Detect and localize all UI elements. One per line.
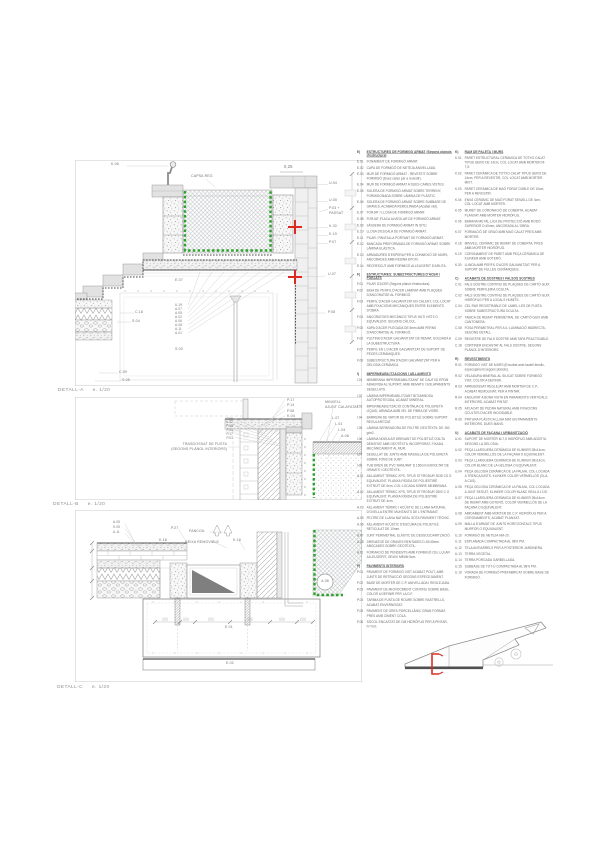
detail-b-caption: DETALL-Be. 1/20: [53, 502, 105, 507]
legend-item: R.06PINTURA PLÀSTICA LLISA MAT EN PARAME…: [455, 417, 550, 426]
planter-substrate-hatch: [183, 190, 272, 253]
legend-item: C.01FALS SOSTRE CONTINU DE PLAQUES DE CA…: [455, 282, 550, 291]
legend-item: I.06LÀMINA NODULAR DRENANT DE POLIETILÈ …: [357, 437, 452, 451]
legend-section: F)ESTRUCTURES: SUBESTRUCTURES D'ACER I F…: [357, 273, 452, 368]
legend-item: R.03ARREBOSSAT REGLEJAT AMB MORTER DE C.…: [455, 384, 550, 393]
legend-item: U.08AMIDAMENT AMB MORTER DE C.P. HIDRÒFU…: [455, 511, 550, 520]
detail-c-caption: DETALL-Ce. 1/20: [57, 685, 110, 690]
legend-item: F.04ANCORATGES MECÀNICS TIPUS HILTI HST3…: [357, 315, 452, 324]
legend-item: K.19CORONAMENT DE PARET AMB PEÇA CERÀMIC…: [455, 252, 550, 261]
key-section-sketch: [395, 617, 555, 679]
legend-item: K.18MINVELL CERÀMIC DE REMAT DE COBERTA,…: [455, 241, 550, 250]
legend-section: K)RAM DE PALETA I MURSK.01PARET ESTRUCTU…: [455, 150, 550, 272]
legend-item: K.30LLINDA AMB PERFIL D'ACER GALVANITZAT…: [455, 263, 550, 272]
detail-b-linework: [75, 397, 362, 500]
facade-wall-section: [295, 188, 317, 383]
legend-item: F.01PILAR D'ACER (Segons plànol d'estruc…: [357, 282, 452, 287]
detail-a-drawing: K.06CAPSA REG0,25U.04U.05P.03 +PASSATK.3…: [75, 160, 362, 386]
legend-section-header: U)ACABATS DE FAÇANA I URBANITZACIÓ: [455, 431, 550, 435]
legend-item: A.08DRENATGE DE GRAVES RENTADES D.20/40m…: [357, 539, 452, 548]
legend-item: E.07FORJAT / LLOSA DE FORMIGÓ ARMAT.: [357, 211, 452, 216]
key-section-linework: [395, 617, 555, 679]
legend-item: A.07JUNT PERIMETRAL ELÀSTIC DE DESSOLIDA…: [357, 533, 452, 538]
legend-item: U.05PEÇA GELOSIA CERÀMICA DE LA PALMA, C…: [455, 485, 550, 494]
legend-item: A.05FELTRE DE LLANA NATURAL SOTA PAVIMEN…: [357, 516, 452, 521]
legend-item: K.07FORMACIÓ DE GRAÓ AMB MAÓ CALAT PRES …: [455, 230, 550, 239]
legend-item: E.09JÀSSERA DE FORMIGÓ ARMAT IN SITU.: [357, 223, 452, 228]
legend-item: E.14RECRESCUT AMB FORMIGÓ ALLEUGERIT D'A…: [357, 263, 452, 268]
legend-section: R)REVESTIMENTSR.01FORMIGÓ VIST DE MURS (…: [455, 357, 550, 426]
detail-a-linework: [75, 160, 362, 386]
detail-b-drawing: P.17P.14P.08K.04P.06K.02P.05P.04P.17P.01…: [75, 397, 362, 500]
legend-item: R.05APLACAT DE PEDRA NATURAL AMB FIXACIO…: [455, 406, 550, 415]
legend-item: E.01FONAMENT DE FORMIGÓ ARMAT.: [357, 159, 452, 164]
legend-item: E.05SOLERA DE FORMIGÓ ARMAT SOBRE TERREN…: [357, 189, 452, 198]
legend-item: E.12BANCADA PREFORMADA DE FORMIGÓ ARMAT …: [357, 242, 452, 251]
legend-item: U.04PEÇA GELOSIA CERÀMICA DE LA PALMA, C…: [455, 469, 550, 483]
legend-item: E.08FORJAT-PLACA ALVEOLAR DE FORMIGÓ ARM…: [357, 217, 452, 222]
legend-section-header: R)REVESTIMENTS: [455, 357, 550, 361]
gravel-band: [97, 581, 160, 598]
legend-item: I.08TUB DREN DE PVC RANURAT D.150mm ENVO…: [357, 463, 452, 472]
legend-item: K.02PARET CERÀMICA DE TOTXO CALAT TIPUS …: [455, 171, 550, 185]
legend-item: F.05XAPA D'ACER PLEGADA DE 8mm AMB PERNS…: [357, 326, 452, 335]
legend-section-header: C)ACABATS DE SOSTRES I FALSOS SOSTRES: [455, 277, 550, 281]
legend-item: F.03PERFIL D'ACER GALVANITZAT EN CALENT,…: [357, 299, 452, 313]
legend-item: A.01AÏLLAMENT TÈRMIC XPS, TIPUS STYRODUR…: [357, 474, 452, 488]
legend-item: P.01PAVIMENT DE FORMIGÓ VIST ACABAT POLI…: [357, 570, 452, 579]
legend-section-header: K)RAM DE PALETA I MURS: [455, 150, 550, 154]
building-section-profile: [405, 622, 546, 667]
detail-c-caption-name: DETALL-C: [57, 685, 83, 690]
detail-b-caption-scale: e. 1/20: [88, 502, 105, 507]
legend-column-1: E)ESTRUCTURES DE FORMIGÓ ARMAT (Segons p…: [357, 150, 452, 630]
legend-item: C.08FOSA PERIMETRAL PER A IL·LUMINACIÓ I…: [455, 326, 550, 335]
legend-item: A.11FORMACIÓ DE PENDENTS AMB FORMIGÓ CEL…: [357, 550, 452, 559]
airflow-arrows-icon: [213, 525, 232, 536]
detail-c-linework: [75, 510, 362, 682]
legend-item: F.06PLETINA D'ACER GALVANITZAT DE REMAT,…: [357, 336, 452, 345]
legend-item: U.10FORMIGÓ DE NETEJA HM-20.: [455, 533, 550, 538]
legend-section-header: E)ESTRUCTURES DE FORMIGÓ ARMAT (Segons p…: [357, 150, 452, 157]
railing-post-cap: [170, 162, 176, 168]
legend-item: E.02CAPA DE FORMIGÓ DE NETEJA ANIVELLADA…: [357, 165, 452, 170]
legend-item: K.01PARET ESTRUCTURAL CERÀMICA DE TOTXO …: [455, 156, 550, 170]
legend-item: E.10LLOSA D'ESCALA DE FORMIGÓ ARMAT.: [357, 229, 452, 234]
legend-item: U.13TERRA VEGETAL.: [455, 552, 550, 557]
legend-item: R.01FORMIGÓ VIST DE MURS (Encofrat amb t…: [455, 363, 550, 372]
legend-section-header: F)ESTRUCTURES: SUBESTRUCTURES D'ACER I F…: [357, 273, 452, 280]
legend-item: R.02VELADURA MINERAL AL SILICAT SOBRE FO…: [455, 374, 550, 383]
legend-item: I.07SEGELLAT DE JUNTS AMB MASSILLA DE PO…: [357, 452, 452, 461]
legend-item: I.05LÀMINA SEPARADORA DE FELTRE GEOTÈXTI…: [357, 426, 452, 435]
legend-column-2: K)RAM DE PALETA I MURSK.01PARET ESTRUCTU…: [455, 150, 550, 620]
legend-item: C.09REGISTRE DE FALS SOSTRE AMB TAPA PRA…: [455, 337, 550, 342]
legend-item: E.03MUR DE FORMIGÓ ARMAT - REVESTIT SOBR…: [357, 172, 452, 181]
legend-item: K.03PARET CERÀMICA DE MAÓ FORAT DOBLE DE…: [455, 187, 550, 196]
legend-item: I.02LÀMINA IMPERMEABILITZANT BITUMINOSA …: [357, 393, 452, 402]
legend-item: P.02BASE DE MORTER DE C.P. ANIVELLADA I …: [357, 581, 452, 586]
legend-section: U)ACABATS DE FAÇANA I URBANITZACIÓU.01SU…: [455, 431, 550, 580]
legend-item: R.04ENGUIXAT A BONA VISTA EN PARAMENTS V…: [455, 395, 550, 404]
legend-item: U.12TELA ANTIARRELS PER A POSTERIOR JARD…: [455, 546, 550, 551]
legend-section-header: I)IMPERMEABILITZACIONS I AÏLLAMENTS: [357, 372, 452, 376]
detail-a-caption-name: DETALL-A: [58, 388, 84, 393]
legend-item: K.04ENVÀ CERÀMIC DE MAÓ FORAT SENZILL DE…: [455, 198, 550, 207]
legend-section: E)ESTRUCTURES DE FORMIGÓ ARMAT (Segons p…: [357, 150, 452, 268]
drainage-callout-circle: [317, 574, 333, 590]
legend-item: I.04BARRERA DE VAPOR DE POLIETILÈ SOBRE …: [357, 415, 452, 424]
paving-band-hatch: [313, 442, 362, 454]
legend-column-2-content: K)RAM DE PALETA I MURSK.01PARET ESTRUCTU…: [455, 150, 550, 580]
legend-item: K.05MURET DE CORONACIÓ DE COBERTA, ACABA…: [455, 208, 550, 217]
legend-item: U.11ESPLANADA COMPACTADA AL 98% PM.: [455, 539, 550, 544]
legend-item: A.03AÏLLAMENT TÈRMIC I ACÚSTIC DE LLANA …: [357, 505, 452, 514]
legend-item: F.07PERFIL EN L D'ACER GALVANITZAT DE SU…: [357, 347, 452, 356]
legend-item: P.03PAVIMENT DE MICROCIMENT CONTINU SOBR…: [357, 587, 452, 596]
legend-item: E.04MUR DE FORMIGÓ ARMAT A DUES CARES VI…: [357, 183, 452, 188]
detail-c-caption-scale: e. 1/20: [92, 685, 109, 690]
legend-item: I.03IMPERMEABILITZACIÓ CONTÍNUA DE POLIU…: [357, 404, 452, 413]
roof-screed-band: [143, 260, 297, 270]
legend-item: U.19VORADA DE FORMIGÓ PREFABRICAT SOBRE …: [455, 570, 550, 579]
legend-item: E.13ARMADURES D'ESPERA PER A CONNEXIÓ DE…: [357, 253, 452, 262]
detail-a-caption-scale: e. 1/20: [93, 388, 110, 393]
legend-item: A.02AÏLLAMENT TÈRMIC XPS, TIPUS STYRODUR…: [357, 490, 452, 504]
legend-item: U.02PEÇA LLARGUERA CERÀMICA DE KLINKER 2…: [455, 448, 550, 457]
legend-item: C.04CEL RAS REGISTRABLE DE LAMEL·LES DE …: [455, 304, 550, 313]
detail-c-drawing: A.05K.05A.11P.27K.18K.18FANCOILREIXA REM…: [75, 510, 362, 682]
legend-section-header: P)PAVIMENTS INTERIORS: [357, 564, 452, 568]
legend-item: C.07TABICA DE REMAT PERIMETRAL DE CARTÓ-…: [455, 315, 550, 324]
legend-item: U.01SUPORT DE MORTER M-7,5 HIDRÒFUG AMB …: [455, 437, 550, 446]
legend-item: F.08SUBESTRUCTURA D'ACER GALVANITZAT PER…: [357, 358, 452, 367]
drawing-sheet: K.06CAPSA REG0,25U.04U.05P.03 +PASSATK.3…: [0, 0, 600, 849]
legend-section: C)ACABATS DE SOSTRES I FALSOS SOSTRESC.0…: [455, 277, 550, 352]
legend-item: K.06BARANA METÀL·LICA DE PROTECCIÓ AMB R…: [455, 219, 550, 228]
footing: [143, 599, 320, 657]
legend-item: U.03PEÇA LLARGUERA CERÀMICA DE KLINKER 2…: [455, 459, 550, 468]
insulation-zigzag-band: [97, 568, 160, 581]
detail-b-caption-name: DETALL-B: [53, 502, 79, 507]
ground-dotted-fill: [313, 454, 362, 500]
legend-item: A.06AÏLLAMENT ACÚSTIC D'ESCUMA DE POLIET…: [357, 522, 452, 531]
legend-item: U.09MALLA D'ARMAT DE JUNTS HORITZONTALS …: [455, 522, 550, 531]
legend-item: E.06SOLERA DE FORMIGÓ ARMAT SOBRE SUBBAS…: [357, 200, 452, 209]
detail-a-caption: DETALL-Ae. 1/20: [58, 388, 110, 393]
legend-item: C.02FALS SOSTRE CONTINU DE PLAQUES DE CA…: [455, 293, 550, 302]
legend-item: E.11PILAR / PANTALLA PORTANT DE FORMIGÓ …: [357, 235, 452, 240]
legend-item: U.14TERRA PORGADA GARBELLADA.: [455, 558, 550, 563]
legend-column-1-content: E)ESTRUCTURES DE FORMIGÓ ARMAT (Segons p…: [357, 150, 452, 630]
legend-item: U.15SUBBASE DE TOT-Ú COMPACTADA AL 98% P…: [455, 564, 550, 569]
insulation-zigzag-band: [75, 308, 112, 320]
legend-item: I.01MEMBRANA IMPERMEABILITZANT DE CAUTXÚ…: [357, 378, 452, 392]
lean-concrete-strip: [143, 659, 315, 670]
legend-item: U.07PEÇA LLARGUERA CERÀMICA DE KLINKER 2…: [455, 496, 550, 510]
legend-item: P.04TARIMA DE FUSTA DE ROURE SOBRE RASTR…: [357, 598, 452, 607]
legend-item: C.18CORTINER ENCASTAT AL FALS SOSTRE, SE…: [455, 343, 550, 352]
legend-section: I)IMPERMEABILITZACIONS I AÏLLAMENTSI.01M…: [357, 372, 452, 559]
legend-item: F.02BIGA DE PERFIL D'ACER LAMINAT AMB PL…: [357, 288, 452, 297]
